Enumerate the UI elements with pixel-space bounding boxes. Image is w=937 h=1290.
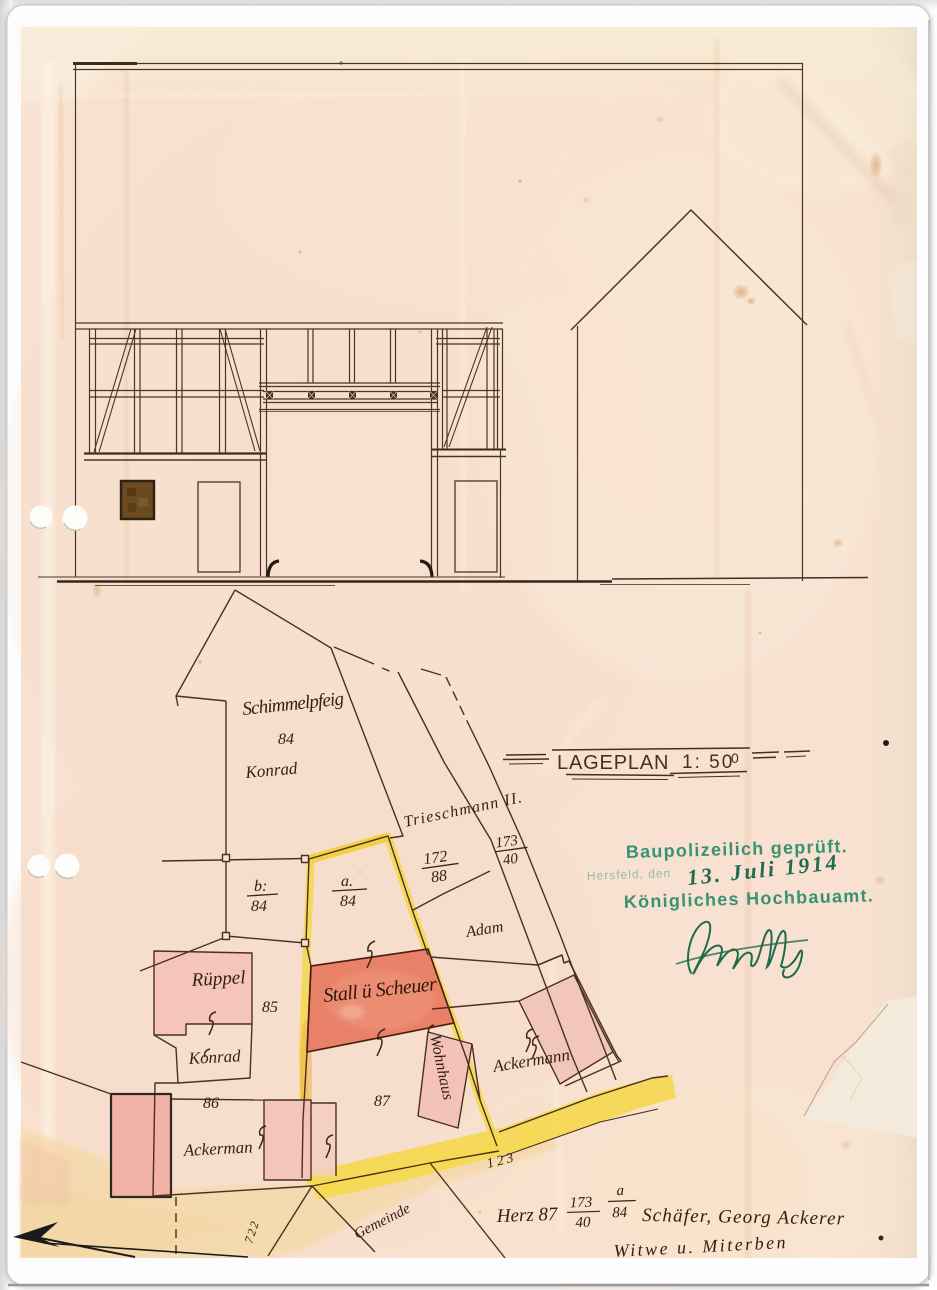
svg-text:LAGEPLAN: LAGEPLAN bbox=[557, 752, 673, 774]
svg-text:a: a bbox=[616, 1183, 624, 1199]
svg-text:84: 84 bbox=[612, 1205, 628, 1222]
svg-text:a.: a. bbox=[341, 873, 353, 890]
svg-text:Herz 87: Herz 87 bbox=[495, 1204, 559, 1227]
svg-text:84: 84 bbox=[251, 898, 267, 915]
svg-text:Schäfer, Georg Ackerer: Schäfer, Georg Ackerer bbox=[642, 1205, 845, 1230]
svg-text:0: 0 bbox=[731, 750, 739, 766]
svg-text:Hersfeld, den: Hersfeld, den bbox=[587, 866, 672, 883]
svg-text:85: 85 bbox=[262, 999, 278, 1016]
svg-text:Ackerman: Ackerman bbox=[182, 1137, 253, 1160]
svg-text:84: 84 bbox=[278, 731, 294, 748]
svg-text:86: 86 bbox=[203, 1095, 219, 1112]
svg-text:87: 87 bbox=[374, 1093, 391, 1110]
svg-text:Rüppel: Rüppel bbox=[190, 967, 246, 991]
svg-text:40: 40 bbox=[502, 851, 520, 869]
svg-text:88: 88 bbox=[430, 867, 448, 886]
svg-text:b:: b: bbox=[254, 878, 267, 895]
svg-text:Konrad: Konrad bbox=[187, 1046, 241, 1068]
svg-text:40: 40 bbox=[575, 1215, 591, 1232]
svg-text:84: 84 bbox=[340, 893, 356, 910]
svg-text:173: 173 bbox=[569, 1195, 592, 1212]
svg-text:1: 50: 1: 50 bbox=[682, 752, 734, 773]
